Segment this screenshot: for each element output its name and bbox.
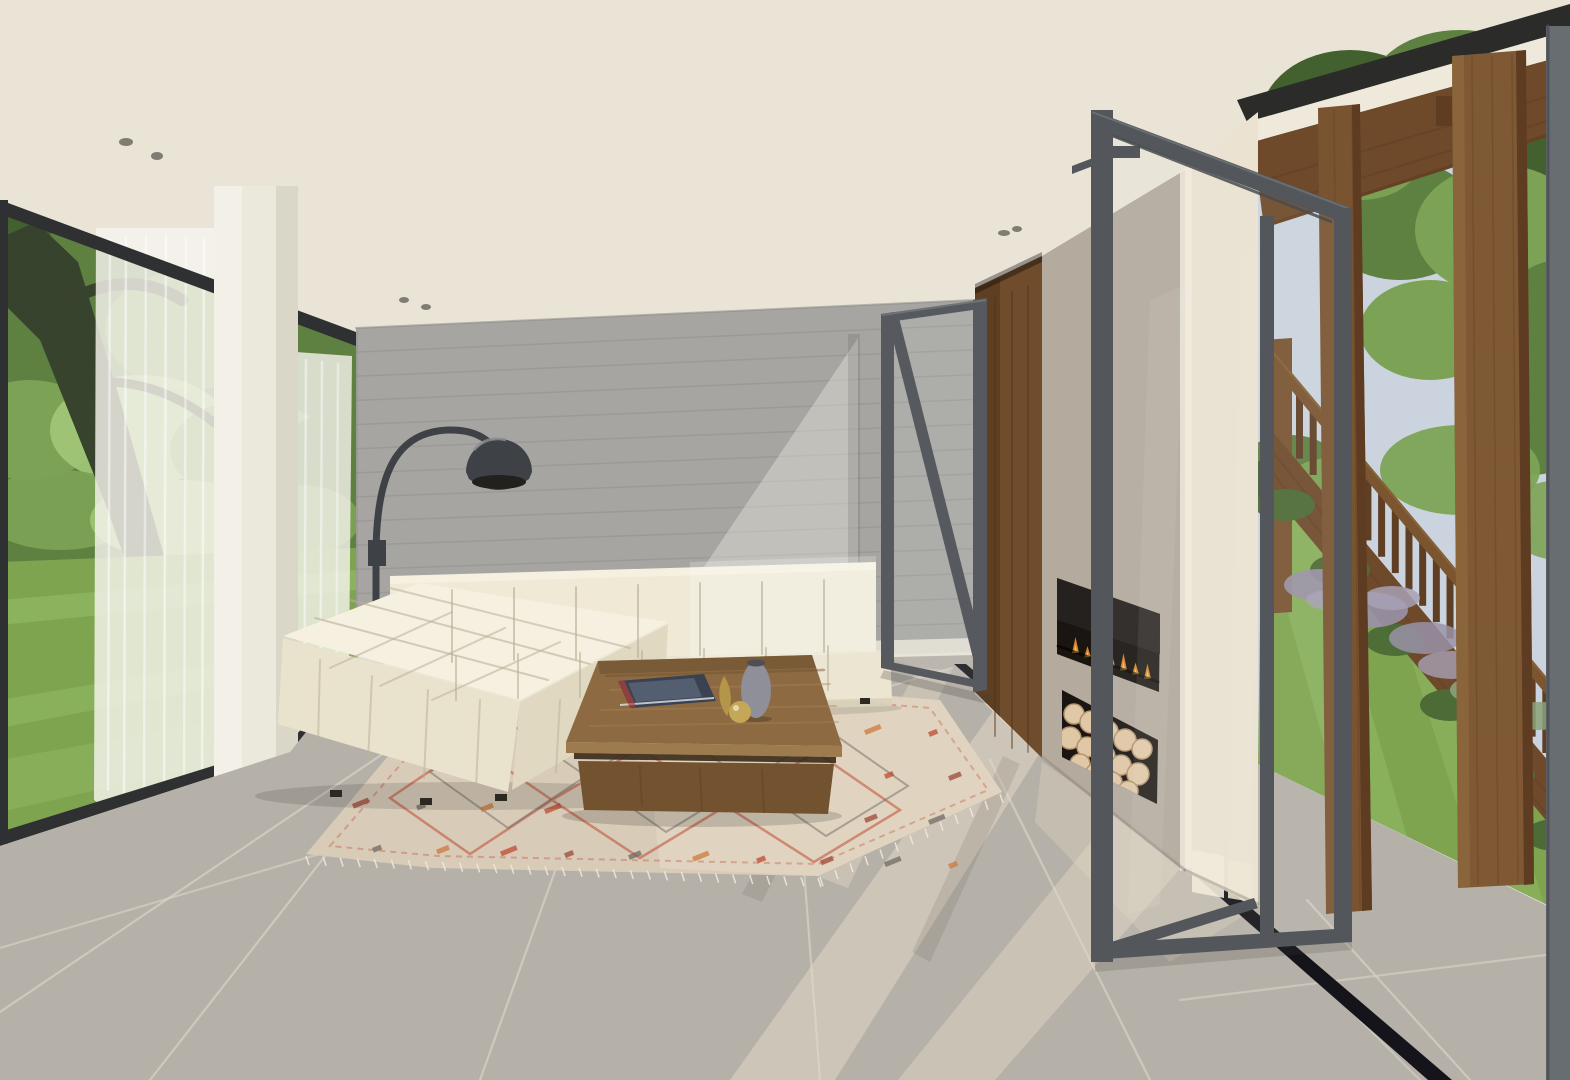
- pivot-hinge: [1113, 146, 1140, 158]
- coffee-table: [562, 655, 842, 827]
- door-frame-right: [1334, 208, 1352, 942]
- column-highlight: [214, 186, 242, 846]
- sofa-sunlit-overlay: [690, 556, 876, 662]
- sphere-highlight: [733, 705, 739, 711]
- scene-canvas: [0, 0, 1570, 1080]
- lamp-shade-opening: [472, 475, 526, 489]
- corner-glazing-mullion: [1546, 26, 1570, 1080]
- pivot-door-middle: [880, 298, 992, 704]
- curtain-panel: [94, 228, 218, 808]
- post-tenon: [1436, 96, 1452, 126]
- table-base: [578, 761, 834, 814]
- door-side-member: [1260, 216, 1274, 934]
- pivot-door-right: [1072, 110, 1352, 972]
- brass-sphere: [729, 701, 751, 723]
- rendered-interior-scene: [0, 0, 1570, 1080]
- lamp-joint: [368, 540, 386, 566]
- window-edge-frame: [0, 200, 8, 844]
- door-frame-left: [1091, 110, 1113, 962]
- vase-rim: [747, 660, 765, 667]
- door-frame-left: [881, 312, 894, 668]
